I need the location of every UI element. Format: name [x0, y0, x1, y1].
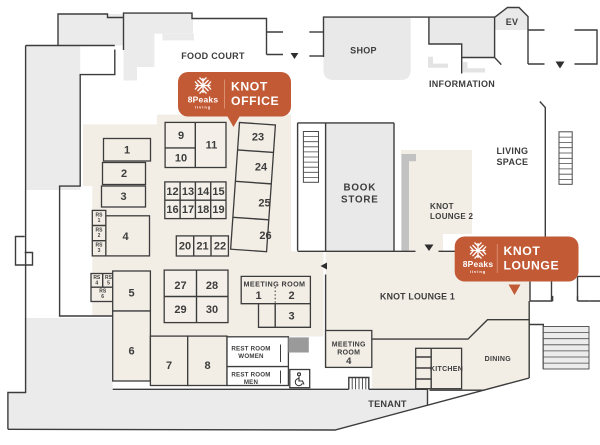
svg-text:14: 14 [197, 186, 210, 198]
svg-text:9: 9 [178, 130, 184, 142]
svg-text:3: 3 [120, 191, 126, 203]
svg-text:REST ROOM: REST ROOM [231, 372, 270, 379]
svg-text:21: 21 [196, 241, 208, 253]
svg-text:2: 2 [288, 290, 294, 302]
svg-text:6: 6 [101, 294, 104, 300]
svg-text:7: 7 [166, 360, 172, 372]
svg-text:4: 4 [95, 281, 98, 287]
svg-text:OFFICE: OFFICE [231, 94, 279, 108]
svg-text:27: 27 [174, 280, 186, 292]
svg-text:KITCHEN: KITCHEN [430, 366, 463, 373]
svg-text:5: 5 [128, 288, 134, 300]
svg-text:4: 4 [346, 356, 352, 367]
svg-text:11: 11 [206, 140, 218, 152]
svg-text:23: 23 [252, 132, 264, 144]
svg-text:18: 18 [197, 204, 209, 216]
svg-text:KNOT: KNOT [430, 202, 454, 211]
svg-text:3: 3 [288, 311, 294, 323]
svg-text:3: 3 [98, 248, 101, 254]
svg-text:28: 28 [206, 280, 218, 292]
svg-text:2: 2 [98, 233, 101, 239]
svg-text:DINING: DINING [485, 356, 512, 363]
svg-text:15: 15 [212, 186, 224, 198]
svg-text:MEETING: MEETING [332, 342, 366, 349]
svg-text:30: 30 [206, 304, 218, 316]
svg-text:24: 24 [255, 162, 268, 174]
svg-text:1: 1 [98, 218, 101, 224]
svg-text:INFORMATION: INFORMATION [429, 79, 495, 89]
svg-text:8Peaks: 8Peaks [463, 259, 494, 269]
svg-text:22: 22 [214, 241, 226, 253]
svg-text:MEN: MEN [244, 379, 259, 386]
svg-text:26: 26 [259, 230, 271, 242]
svg-text:1: 1 [255, 290, 261, 302]
svg-text:19: 19 [212, 204, 224, 216]
svg-text:living: living [195, 105, 211, 110]
svg-text:KNOT LOUNGE 1: KNOT LOUNGE 1 [380, 292, 455, 302]
svg-text:LIVING: LIVING [497, 146, 529, 156]
svg-text:16: 16 [166, 204, 178, 216]
svg-text:SHOP: SHOP [350, 46, 377, 56]
svg-text:EV: EV [506, 17, 519, 27]
svg-text:8Peaks: 8Peaks [188, 95, 219, 105]
svg-text:STORE: STORE [341, 195, 379, 206]
svg-text:13: 13 [182, 186, 194, 198]
svg-text:4: 4 [122, 231, 129, 243]
svg-text:FOOD COURT: FOOD COURT [181, 51, 245, 61]
svg-text:2: 2 [121, 168, 127, 180]
svg-text:SPACE: SPACE [497, 157, 529, 167]
svg-text:12: 12 [166, 186, 178, 198]
svg-text:17: 17 [182, 204, 194, 216]
svg-text:1: 1 [124, 145, 130, 157]
svg-text:LOUNGE: LOUNGE [504, 259, 560, 273]
svg-text:KNOT: KNOT [231, 80, 268, 94]
svg-text:6: 6 [128, 346, 134, 358]
svg-text:MEETING ROOM: MEETING ROOM [244, 280, 306, 289]
svg-text:29: 29 [174, 304, 186, 316]
svg-text:8: 8 [204, 360, 210, 372]
svg-text:living: living [470, 269, 486, 274]
svg-text:5: 5 [107, 281, 110, 287]
svg-text:LOUNGE 2: LOUNGE 2 [430, 212, 474, 221]
svg-text:REST ROOM: REST ROOM [231, 346, 270, 353]
svg-text:KNOT: KNOT [504, 244, 541, 258]
svg-text:BOOK: BOOK [344, 183, 377, 194]
svg-text:10: 10 [175, 153, 187, 165]
svg-text:20: 20 [179, 241, 191, 253]
svg-text:TENANT: TENANT [368, 399, 407, 409]
svg-text:25: 25 [258, 198, 270, 210]
svg-text:WOMEN: WOMEN [238, 353, 264, 360]
